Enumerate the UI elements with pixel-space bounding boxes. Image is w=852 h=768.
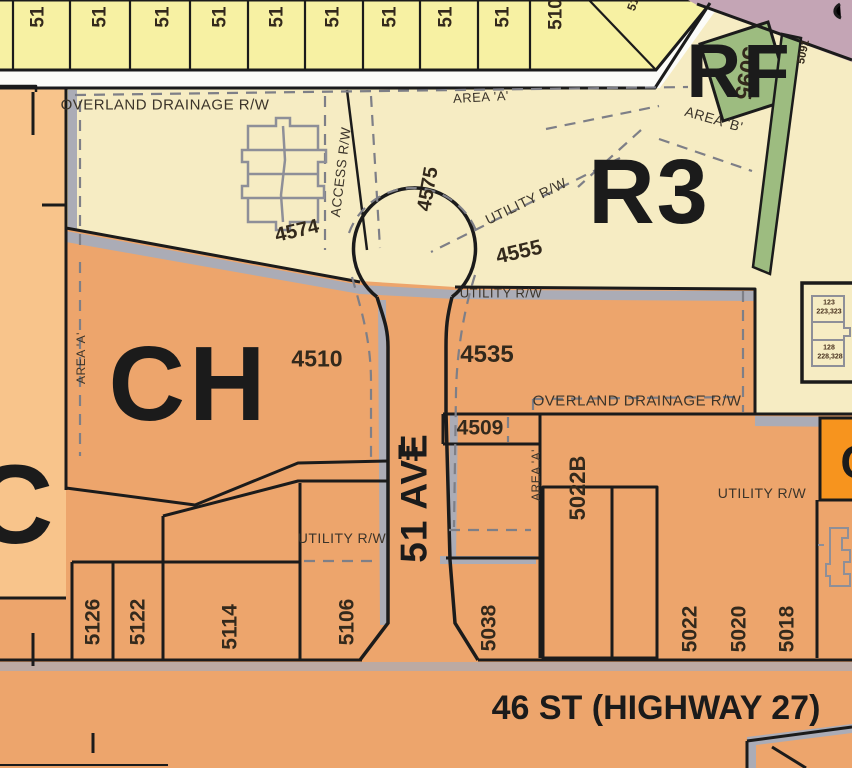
zone-label-rf: RF [686, 34, 791, 110]
unit-number-box [802, 283, 852, 382]
zone-label-c: C [0, 449, 55, 561]
yellow-lot-label: 51 [437, 6, 456, 27]
zone-label-c-cut: C [840, 439, 852, 485]
yellow-lot-label: 51 [211, 6, 230, 27]
road-label-46-st: 46 ST (HIGHWAY 27) [492, 691, 821, 725]
zone-label-r3: R3 [588, 146, 710, 238]
road-label-51-ave: 51 AVE [396, 433, 433, 562]
lot-label-5022: 5022 [680, 606, 701, 653]
yellow-lot-label: 51 [91, 6, 110, 27]
yellow-lot-label: 51 [381, 6, 400, 27]
overland-drainage-label-mid: OVERLAND DRAINAGE R/W [533, 394, 742, 409]
yellow-lot-label-510: 510 [547, 0, 566, 30]
parcel-label-5022b: 5022B [567, 456, 589, 521]
parcel-label-4509: 4509 [457, 418, 504, 439]
zone-label-ch: CH [108, 331, 269, 437]
parcel-label-4535: 4535 [460, 343, 513, 367]
yellow-lot-label: 51 [29, 6, 48, 27]
yellow-lot-label: 51 [154, 6, 173, 27]
yellow-lot-label: 51 [268, 6, 287, 27]
area-a-label-top: AREA 'A' [453, 89, 510, 105]
unit-number-top-b: 223,323 [816, 309, 841, 316]
lot-label-5126: 5126 [83, 599, 104, 646]
lot-label-5018: 5018 [777, 606, 798, 653]
area-a-label-mid: AREA 'A' [530, 449, 542, 501]
lot-label-5038: 5038 [479, 605, 500, 652]
lot-label-5020: 5020 [729, 606, 750, 653]
unit-number-bot-b: 228,328 [817, 354, 842, 361]
lot-label-5114: 5114 [220, 604, 241, 650]
lot-label-5106: 5106 [337, 599, 358, 646]
parcel-label-4510: 4510 [291, 348, 342, 371]
utility-rw-label-right: UTILITY R/W [718, 486, 806, 500]
yellow-lot-label: 51 [494, 6, 513, 27]
lot-label-5122: 5122 [128, 599, 149, 646]
yellow-lot-label: 51 [324, 6, 343, 27]
unit-number-top-a: 123 [823, 300, 835, 307]
unit-number-bot-a: 128 [823, 345, 835, 352]
utility-rw-label-lots: UTILITY R/W [298, 531, 386, 545]
utility-rw-label-top: UTILITY R/W [460, 287, 543, 300]
zoning-map: 51 51 51 51 51 51 51 51 51 510 51 OVERLA… [0, 0, 852, 768]
area-a-label-left: AREA 'A' [75, 332, 87, 384]
overland-drainage-label-top: OVERLAND DRAINAGE R/W [61, 98, 270, 113]
